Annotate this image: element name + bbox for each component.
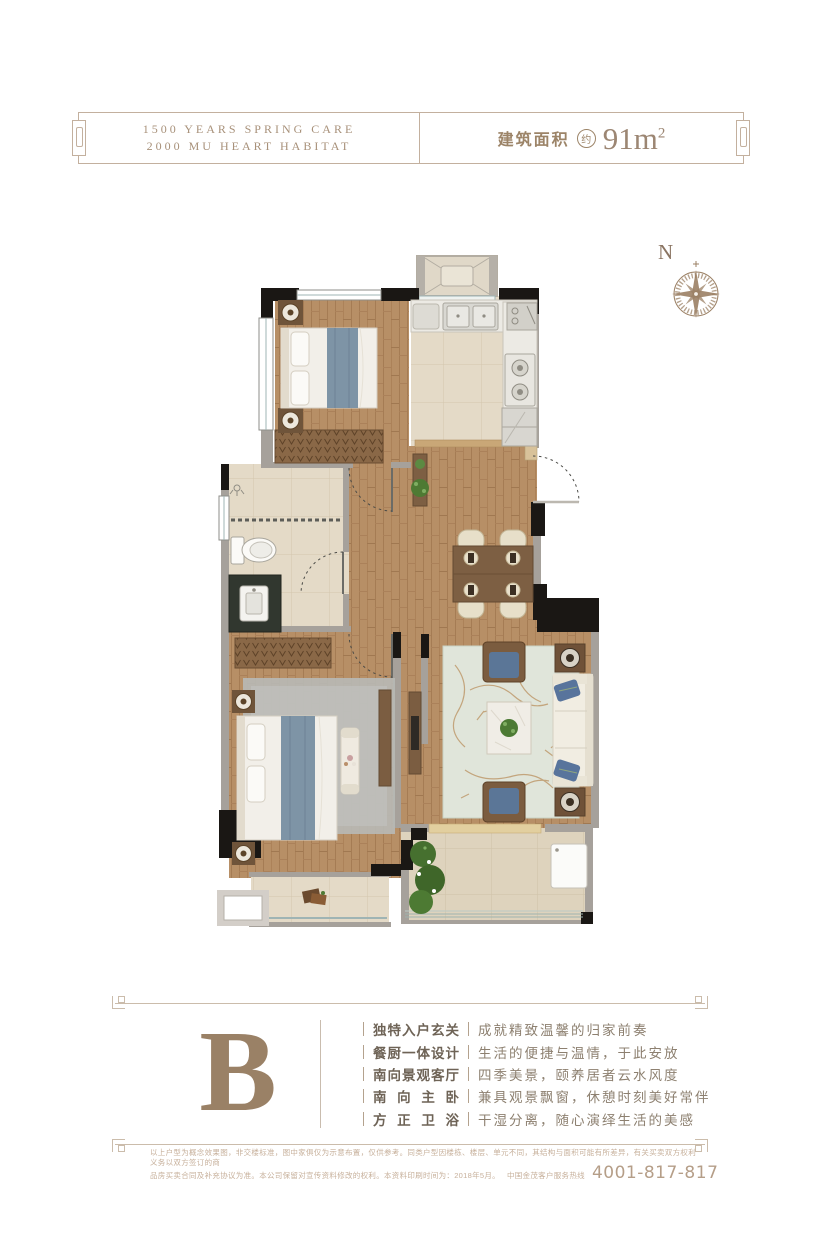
feature-row: 南向主卧 兼具观景飘窗，休憩时刻美好常伴 xyxy=(363,1085,711,1107)
feature-row: 独特入户玄关 成就精致温馨的归家前奏 xyxy=(363,1018,711,1040)
feature-desc: 兼具观景飘窗，休憩时刻美好常伴 xyxy=(478,1086,711,1106)
slogan-line-1: 1500 YEARS SPRING CARE xyxy=(143,121,356,138)
feature-panel: B 独特入户玄关 成就精致温馨的归家前奏 餐厨一体设计 生活的便捷与温情，于此安… xyxy=(115,1003,705,1145)
side-table xyxy=(555,644,585,672)
feature-desc: 四季美景，颐养居者云水风度 xyxy=(478,1064,680,1084)
plant xyxy=(411,479,429,497)
toilet xyxy=(231,537,276,564)
feature-label: 南向景观客厅 xyxy=(373,1064,459,1084)
bed-bench xyxy=(341,728,359,794)
fridge xyxy=(502,408,537,446)
panel-divider xyxy=(320,1020,321,1128)
coffee-table xyxy=(487,702,531,754)
feature-row: 南向景观客厅 四季美景，颐养居者云水风度 xyxy=(363,1063,711,1085)
floorplan-flyer-page: 1500 YEARS SPRING CARE 2000 MU HEART HAB… xyxy=(0,0,820,1250)
north-label: N xyxy=(658,240,673,265)
feature-row: 方正卫浴 干湿分离，随心演绎生活的美感 xyxy=(363,1108,711,1130)
disclaimer: 以上户型为概念效果图，非交楼标准，图中家俱仅为示意布置，仅供参考。同类户型因楼栋… xyxy=(150,1148,702,1181)
washing-machine xyxy=(551,844,587,888)
header-area: 建筑面积 约 91m2 xyxy=(420,123,743,154)
dresser xyxy=(379,690,391,786)
armchair xyxy=(483,642,525,682)
feature-desc: 生活的便捷与温情，于此安放 xyxy=(478,1042,680,1062)
kitchen-stove xyxy=(505,354,535,406)
feature-list: 独特入户玄关 成就精致温馨的归家前奏 餐厨一体设计 生活的便捷与温情，于此安放 … xyxy=(363,1018,711,1130)
bathroom-vanity xyxy=(229,575,281,632)
floor-plan xyxy=(215,250,645,940)
feature-label: 方正卫浴 xyxy=(373,1109,459,1129)
feature-label: 餐厨一体设计 xyxy=(373,1042,459,1062)
corner-ornament xyxy=(112,1139,125,1152)
master-wardrobe xyxy=(235,638,331,668)
master-bed xyxy=(237,716,337,840)
feature-desc: 干湿分离，随心演绎生活的美感 xyxy=(478,1109,695,1129)
feature-row: 餐厨一体设计 生活的便捷与温情，于此安放 xyxy=(363,1040,711,1062)
header-slogan: 1500 YEARS SPRING CARE 2000 MU HEART HAB… xyxy=(79,113,420,163)
header-left-ornament xyxy=(72,120,86,156)
hotline-number: 4001-817-817 xyxy=(592,1168,718,1178)
hotline-label: 中国金茂客户服务热线 xyxy=(507,1171,585,1181)
approx-circle-badge: 约 xyxy=(577,129,596,148)
kitchen-flue-bay xyxy=(417,256,497,304)
feature-label: 独特入户玄关 xyxy=(373,1019,459,1039)
slogan-line-2: 2000 MU HEART HABITAT xyxy=(147,138,352,155)
side-table xyxy=(555,788,585,816)
header-right-ornament xyxy=(736,120,750,156)
bed xyxy=(281,328,377,408)
corner-ornament xyxy=(112,996,125,1009)
corner-ornament xyxy=(695,996,708,1009)
disclaimer-line-2: 品房买卖合同及补充协议为准。本公司保留对宣传资料修改的权利。本资料印刷时间为：2… xyxy=(150,1171,500,1181)
compass: N xyxy=(648,240,738,332)
area-exponent: 2 xyxy=(658,125,666,141)
area-label: 建筑面积 xyxy=(498,126,570,150)
bedroom2-wardrobe xyxy=(275,430,383,463)
feature-label: 南向主卧 xyxy=(373,1086,459,1106)
header-band: 1500 YEARS SPRING CARE 2000 MU HEART HAB… xyxy=(78,112,744,164)
unit-letter: B xyxy=(153,1008,323,1136)
sofa xyxy=(553,674,593,786)
area-value: 91m2 xyxy=(603,123,666,154)
kitchen-sink xyxy=(443,303,498,330)
feature-desc: 成就精致温馨的归家前奏 xyxy=(478,1019,649,1039)
armchair xyxy=(483,782,525,822)
